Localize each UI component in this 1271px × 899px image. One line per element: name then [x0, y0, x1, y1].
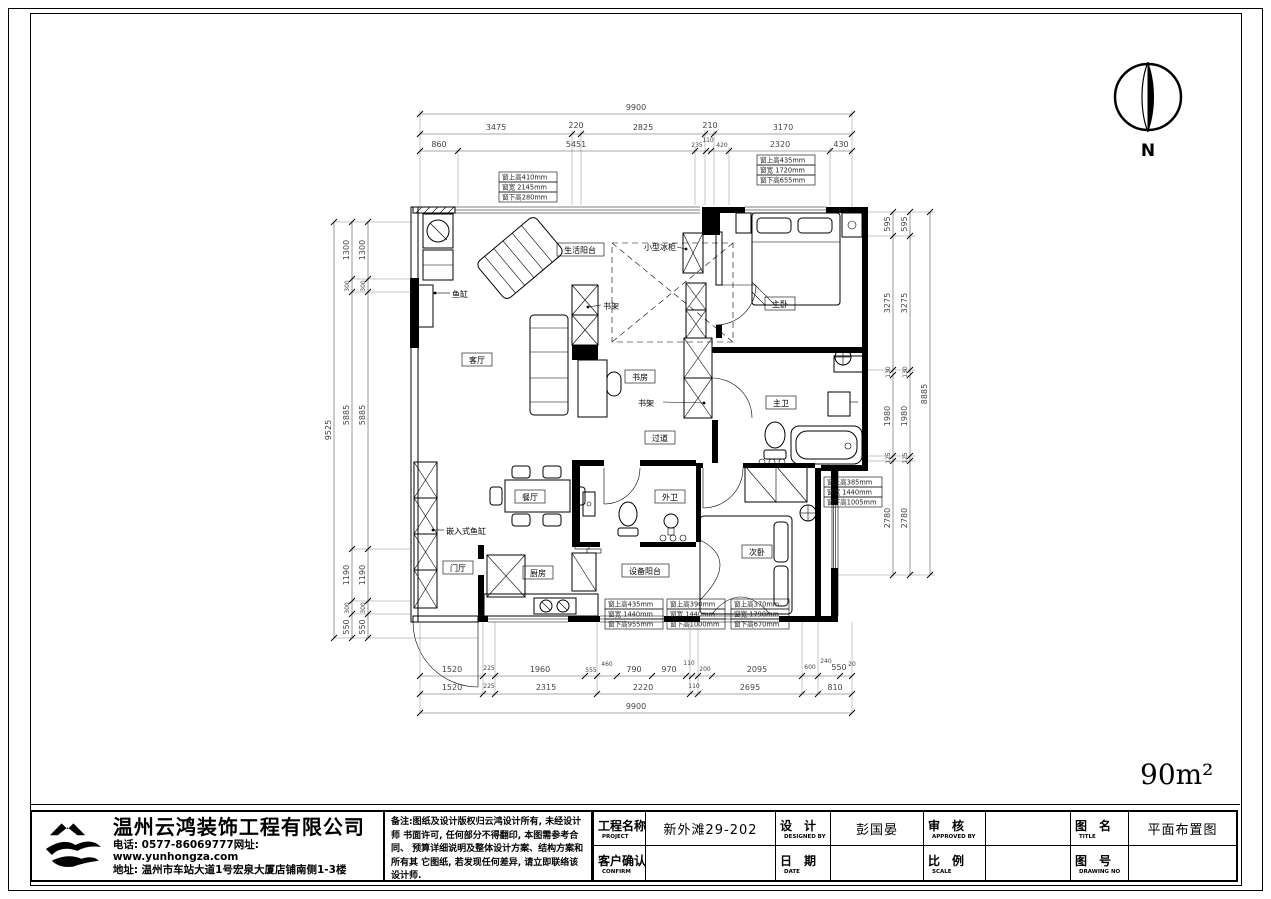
north-arrow-icon: N: [1115, 62, 1181, 161]
room-label-master-bedroom: 主卧: [765, 297, 795, 310]
leader-fish-tank: 鱼缸: [452, 289, 468, 299]
design-label: 设 计: [780, 817, 816, 834]
dim-value: 2825: [633, 123, 653, 132]
window-note-line: 窗上高410mm: [502, 173, 547, 182]
dim-value: 810: [827, 683, 842, 692]
dim-value: 595: [900, 216, 909, 231]
dim-value: 110: [702, 137, 714, 144]
title-label-en: TITLE: [1075, 834, 1096, 840]
leader-mini-fridge: 小型冰柜: [644, 242, 676, 252]
notes-line: 它图纸, 若发现任何差异, 请立即联络该设计师.: [391, 858, 578, 882]
room-label-corridor: 过道: [645, 431, 675, 444]
dwgno-label-cell: 图 号 DRAWING NO: [1070, 846, 1128, 880]
room-label-living: 客厅: [462, 353, 492, 366]
date-label-en: DATE: [780, 869, 800, 875]
company-phone: 电话: 0577-86069777网址: www.yunhongza.com: [113, 839, 383, 863]
dim-value: 600: [804, 664, 816, 671]
dim-value: 300: [360, 280, 367, 292]
approve-label: 审 核: [928, 817, 964, 834]
room-label-text: 客厅: [469, 355, 485, 365]
dim-value: 110: [688, 683, 700, 690]
window-note: 窗上高435mm 窗宽 1440mm 窗下高955mm: [605, 599, 663, 629]
dim-value: 460: [601, 661, 613, 668]
dim-value: 550: [358, 619, 367, 634]
room-labels: 生活阳台 客厅 书房 过道 主卧 主卫 餐厅 门厅 厨房 外卫 设备阳台 次卧: [443, 243, 796, 579]
dim-value: 8885: [920, 384, 929, 404]
window-note-line: 窗宽 1440mm: [670, 610, 715, 619]
drawing-title: 平面布置图: [1147, 819, 1217, 838]
title-block-grid: 工程名称 PROJECT 新外滩29-202 设 计 DESIGNED BY 彭…: [593, 812, 1236, 880]
dim-value: 595: [883, 216, 892, 231]
dim-value: 110: [683, 660, 695, 667]
window-note-line: 窗下高1005mm: [827, 498, 876, 507]
dim-value: 1190: [358, 565, 367, 585]
balcony-furniture: [418, 214, 703, 327]
dim-value: 3275: [900, 293, 909, 313]
study-furniture: [612, 243, 733, 418]
dim-value: 9525: [324, 420, 333, 440]
embedded-tank-cabinet: [414, 462, 437, 608]
dwgno-label-en: DRAWING NO: [1075, 869, 1120, 875]
room-label-text: 生活阳台: [564, 245, 596, 255]
dim-value: 2320: [770, 140, 790, 149]
approve-value-cell: [985, 812, 1070, 846]
dim-value: 20: [848, 661, 856, 668]
dim-value: 125: [885, 452, 892, 464]
dim-value: 5885: [342, 405, 351, 425]
dim-value: 235: [691, 142, 703, 149]
project-value-cell: 新外滩29-202: [645, 812, 775, 846]
dim-value: 3475: [486, 123, 506, 132]
dim-value: 5451: [566, 140, 586, 149]
dim-value: 300: [344, 602, 351, 614]
dim-value: 2780: [883, 508, 892, 528]
dim-value: 1980: [900, 406, 909, 426]
dim-value: 1960: [530, 665, 550, 674]
dim-value: 220: [568, 121, 583, 130]
dim-value: 130: [885, 366, 892, 378]
title-label: 图 名: [1075, 817, 1111, 834]
title-value-cell: 平面布置图: [1128, 812, 1236, 846]
room-label-text: 设备阳台: [629, 566, 661, 576]
room-label-foyer: 门厅: [443, 561, 473, 574]
dim-value: 5885: [358, 405, 367, 425]
room-label-text: 门厅: [450, 563, 466, 573]
dim-value: 2315: [536, 683, 556, 692]
floor-plan-canvas: 生活阳台 客厅 书房 过道 主卧 主卫 餐厅 门厅 厨房 外卫 设备阳台 次卧 …: [0, 0, 1271, 899]
window-note-line: 窗宽 1440mm: [608, 610, 653, 619]
dim-value: 300: [360, 602, 367, 614]
dim-value: 9900: [626, 702, 646, 711]
scale-label-cell: 比 例 SCALE: [923, 846, 985, 880]
dim-value: 3275: [883, 293, 892, 313]
window-note-line: 窗下高280mm: [502, 193, 547, 202]
room-label-living-balcony: 生活阳台: [557, 243, 604, 256]
window-note-line: 窗上高435mm: [760, 156, 805, 165]
company-address: 地址: 温州市车站大道1号宏泉大厦店铺南侧1-3楼: [113, 864, 383, 876]
date-label: 日 期: [780, 852, 816, 869]
room-label-dining: 餐厅: [515, 490, 545, 503]
dim-value: 1980: [883, 406, 892, 426]
dim-value: 240: [820, 658, 832, 665]
dim-value: 225: [483, 665, 495, 672]
window-note: 窗上高410mm 窗宽 2145mm 窗下高280mm: [499, 172, 557, 202]
dim-value: 2695: [740, 683, 760, 692]
window-note-line: 窗下高1000mm: [670, 620, 719, 629]
scale-label: 比 例: [928, 852, 964, 869]
room-label-text: 餐厅: [522, 493, 538, 502]
window-notes: 窗上高410mm 窗宽 2145mm 窗下高280mm 窗上高435mm 窗宽 …: [499, 155, 882, 629]
company-name: 温州云鸿装饰工程有限公司: [113, 816, 383, 839]
window-note-line: 窗上高385mm: [827, 478, 872, 487]
leader-embedded-tank: 嵌入式鱼缸: [446, 526, 486, 536]
room-label-kitchen: 厨房: [523, 566, 553, 579]
scale-label-en: SCALE: [928, 869, 952, 875]
dim-value: 2780: [900, 508, 909, 528]
window-note-line: 窗上高390mm: [670, 600, 715, 609]
design-value-cell: 彭国晏: [830, 812, 923, 846]
dim-value: 9900: [626, 103, 646, 112]
north-label: N: [1141, 141, 1155, 161]
area-label: 90m²: [1140, 758, 1213, 791]
window-note-line: 窗上高370mm: [734, 600, 779, 609]
window-note-line: 窗宽 1440mm: [827, 488, 872, 497]
dim-value: 550: [342, 619, 351, 634]
project-label-cell: 工程名称 PROJECT: [593, 812, 645, 846]
date-value-cell: [830, 846, 923, 880]
dim-value: 860: [431, 140, 446, 149]
confirm-label-en: CONFIRM: [598, 869, 631, 875]
approve-label-cell: 审 核 APPROVED BY: [923, 812, 985, 846]
room-label-text: 外卫: [662, 492, 678, 502]
dim-value: 225: [483, 683, 495, 690]
dim-value: 1520: [442, 665, 462, 674]
dim-value: 970: [661, 665, 676, 674]
room-label-text: 主卫: [773, 398, 789, 408]
project-label-en: PROJECT: [598, 834, 629, 840]
company-logo: [42, 819, 105, 873]
design-value: 彭国晏: [856, 819, 898, 838]
room-label-text: 次卧: [749, 547, 765, 557]
date-label-cell: 日 期 DATE: [775, 846, 830, 880]
confirm-label: 客户确认: [598, 852, 645, 869]
confirm-label-cell: 客户确认 CONFIRM: [593, 846, 645, 880]
kitchen-furniture: [484, 553, 598, 616]
window-note-line: 窗下高955mm: [608, 620, 653, 629]
drawing-sheet: 生活阳台 客厅 书房 过道 主卧 主卫 餐厅 门厅 厨房 外卫 设备阳台 次卧 …: [0, 0, 1271, 899]
room-label-guest-bath: 外卫: [655, 490, 685, 503]
dwgno-label: 图 号: [1075, 852, 1111, 869]
room-label-text: 书房: [632, 372, 648, 382]
title-label-cell: 图 名 TITLE: [1070, 812, 1128, 846]
dim-value: 300: [344, 280, 351, 292]
room-label-text: 厨房: [530, 568, 546, 578]
room-label-second-bedroom: 次卧: [742, 545, 772, 558]
room-label-equipment-balcony: 设备阳台: [622, 564, 669, 577]
project-value: 新外滩29-202: [663, 819, 757, 838]
title-block-rule: [30, 804, 1240, 805]
dim-value: 3170: [773, 123, 793, 132]
dim-value: 2220: [633, 683, 653, 692]
notes-cell: 备注:图纸及设计版权归云鸿设计所有, 未经设计师 书面许可, 任何部分不得翻印,…: [385, 812, 593, 880]
window-note-line: 窗下高655mm: [760, 176, 805, 185]
room-label-text: 过道: [652, 433, 668, 443]
dim-value: 550: [831, 663, 846, 672]
window-note-line: 窗宽 2145mm: [502, 183, 547, 192]
leader-bookshelf: 书架: [603, 301, 619, 311]
project-label: 工程名称: [598, 817, 645, 834]
window-note-line: 窗宽 1790mm: [734, 610, 779, 619]
approve-label-en: APPROVED BY: [928, 834, 975, 840]
dim-value: 1300: [342, 240, 351, 260]
dim-value: 130: [902, 366, 909, 378]
window-note-line: 窗宽 1720mm: [760, 166, 805, 175]
dim-value: 430: [833, 140, 848, 149]
dwgno-value-cell: [1128, 846, 1236, 880]
dim-value: 790: [626, 665, 641, 674]
window-note-line: 窗上高435mm: [608, 600, 653, 609]
company-cell: 温州云鸿装饰工程有限公司 电话: 0577-86069777网址: www.yu…: [32, 812, 385, 880]
window-note: 窗上高435mm 窗宽 1720mm 窗下高655mm: [757, 155, 815, 185]
dim-value: 1300: [358, 240, 367, 260]
window-note: 窗上高385mm 窗宽 1440mm 窗下高1005mm: [824, 477, 882, 507]
scale-value-cell: [985, 846, 1070, 880]
design-label-cell: 设 计 DESIGNED BY: [775, 812, 830, 846]
room-label-master-bath: 主卫: [766, 396, 796, 409]
window-note-line: 窗下高670mm: [734, 620, 779, 629]
second-bedroom-furniture: [700, 466, 816, 614]
dim-value: 2095: [747, 665, 767, 674]
dim-value: 420: [716, 142, 728, 149]
room-label-study: 书房: [625, 370, 655, 383]
walls: [410, 207, 868, 622]
leader-bookshelf: 书架: [638, 398, 654, 408]
title-block: 温州云鸿装饰工程有限公司 电话: 0577-86069777网址: www.yu…: [30, 810, 1238, 882]
room-label-text: 主卧: [772, 299, 788, 309]
design-label-en: DESIGNED BY: [780, 834, 826, 840]
dim-value: 555: [585, 667, 597, 674]
confirm-value-cell: [645, 846, 775, 880]
dim-value: 125: [902, 452, 909, 464]
dim-value: 1190: [342, 565, 351, 585]
dim-value: 200: [699, 666, 711, 673]
dim-value: 210: [702, 121, 717, 130]
dim-value: 1520: [442, 683, 462, 692]
